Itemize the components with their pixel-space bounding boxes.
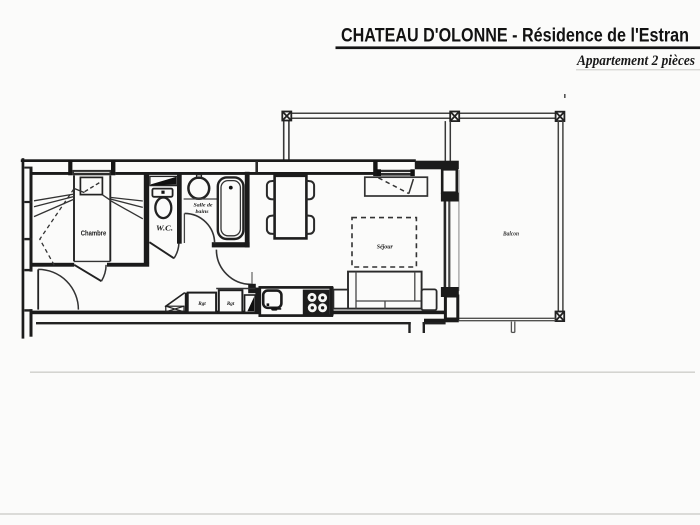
- svg-text:Chambre: Chambre: [81, 229, 107, 238]
- svg-text:Appartement 2 pièces: Appartement 2 pièces: [576, 53, 695, 69]
- svg-text:Salle de: Salle de: [194, 203, 214, 209]
- svg-text:bains: bains: [196, 209, 209, 215]
- svg-text:Balcon: Balcon: [502, 231, 520, 237]
- svg-text:Rgt: Rgt: [198, 301, 206, 307]
- svg-text:Rgt: Rgt: [227, 301, 235, 307]
- svg-text:Séjour: Séjour: [377, 244, 394, 251]
- svg-text:CHATEAU D'OLONNE - Résidence d: CHATEAU D'OLONNE - Résidence de l'Estran: [341, 25, 689, 47]
- svg-text:W.C.: W.C.: [156, 224, 173, 232]
